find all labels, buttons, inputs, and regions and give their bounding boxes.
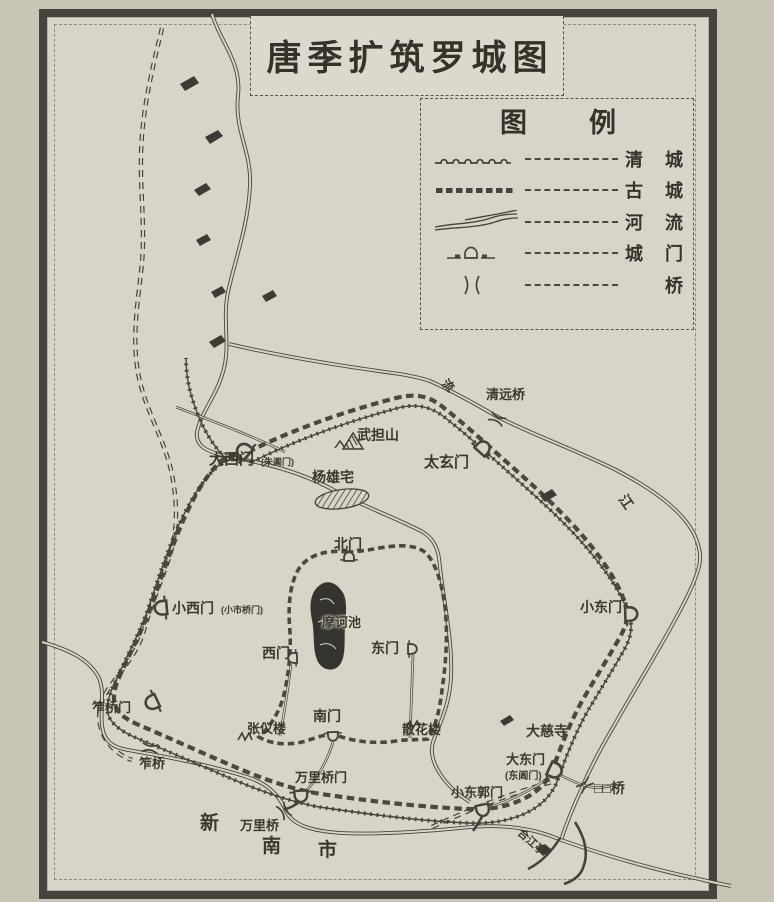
qing-wall-line-icon: [433, 148, 521, 170]
page-title: 唐季扩筑罗城图: [260, 30, 553, 81]
legend-label: 河流: [625, 209, 683, 235]
corner-tower-sanhualou: [406, 721, 420, 728]
legend-item-city-gate: 城门: [433, 238, 683, 270]
legend-title: 图例: [433, 103, 683, 143]
legend-item-river: 河流: [433, 206, 683, 238]
legend-dash: [525, 158, 618, 160]
ancient-wall-line-icon: [433, 179, 521, 201]
bridge-icon: [433, 274, 521, 296]
river-line-icon: [433, 210, 521, 234]
gate-zuoqiaomen: [141, 689, 162, 716]
legend-box: 图例 清城 古城: [420, 98, 694, 330]
roads: [176, 407, 616, 884]
gate-beimen: [340, 552, 358, 561]
legend-item-ancient-wall: 古城: [433, 175, 683, 207]
mountain-icon: [335, 433, 363, 449]
corner-tower-zhangyilou: [238, 733, 252, 740]
legend-dash: [525, 189, 618, 191]
legend-dash: [525, 252, 618, 254]
legend-label: 清城: [625, 146, 683, 172]
city-gate-icon: [433, 242, 521, 264]
ancient-wall-luocheng: [114, 396, 627, 810]
legend-dash: [525, 284, 618, 286]
legend-label: 城门: [625, 240, 683, 266]
legend-item-qing-wall: 清城: [433, 143, 683, 175]
pavilion-hejiangting: [536, 844, 552, 856]
legend-item-bridge: 桥: [433, 269, 683, 301]
pond-mohechi: [311, 582, 347, 669]
legend-dash: [525, 221, 618, 223]
site-yangxiong-residence: [314, 486, 370, 512]
legend-label: 桥: [625, 272, 683, 298]
qing-wall: [107, 358, 631, 823]
map-title-box: 唐季扩筑罗城图: [250, 16, 564, 96]
historical-map: 唐季扩筑罗城图 图例 清城 古城: [0, 0, 774, 902]
legend-label: 古城: [625, 177, 683, 203]
ancient-wall-inner-city: [259, 546, 446, 744]
